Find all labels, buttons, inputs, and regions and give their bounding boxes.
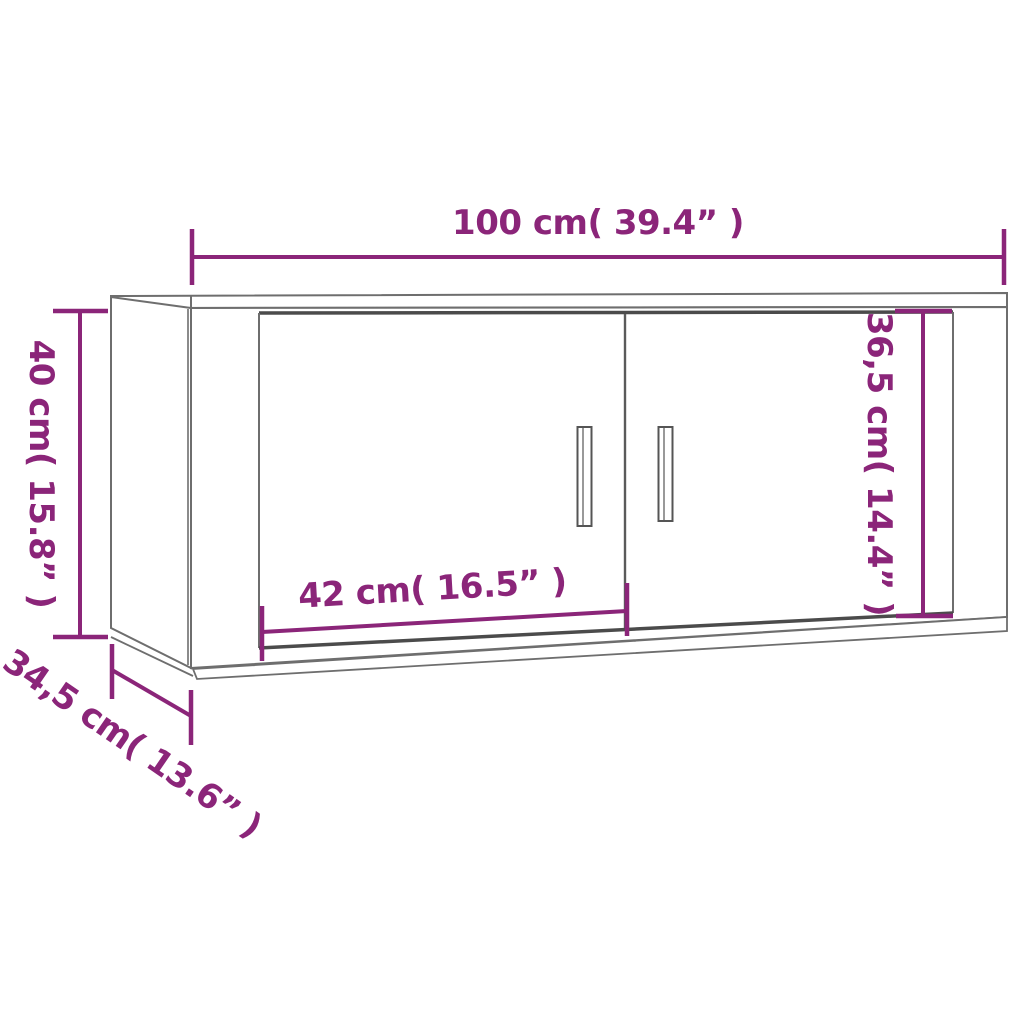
right-door-handle bbox=[659, 427, 673, 521]
dimension-overall-width: 100 cm( 39.4” ) bbox=[192, 203, 1004, 285]
cabinet-left-panel bbox=[111, 297, 191, 668]
cabinet-dimension-diagram: 100 cm( 39.4” ) 40 cm( 15.8” ) 36,5 cm( … bbox=[0, 0, 1024, 1024]
left-door-handle bbox=[578, 427, 592, 526]
depth-dim-line bbox=[112, 670, 191, 716]
door-height-dim-label: 36,5 cm( 14.4” ) bbox=[859, 312, 899, 616]
door-top-edge bbox=[259, 312, 953, 313]
cabinet-top-panel bbox=[111, 293, 1007, 308]
diagram-canvas: 100 cm( 39.4” ) 40 cm( 15.8” ) 36,5 cm( … bbox=[0, 0, 1024, 1024]
right-handle-body bbox=[659, 427, 673, 521]
height-dim-label: 40 cm( 15.8” ) bbox=[21, 340, 61, 609]
width-dim-label: 100 cm( 39.4” ) bbox=[452, 203, 744, 243]
dimension-overall-height: 40 cm( 15.8” ) bbox=[21, 311, 108, 637]
left-handle-body bbox=[578, 427, 592, 526]
